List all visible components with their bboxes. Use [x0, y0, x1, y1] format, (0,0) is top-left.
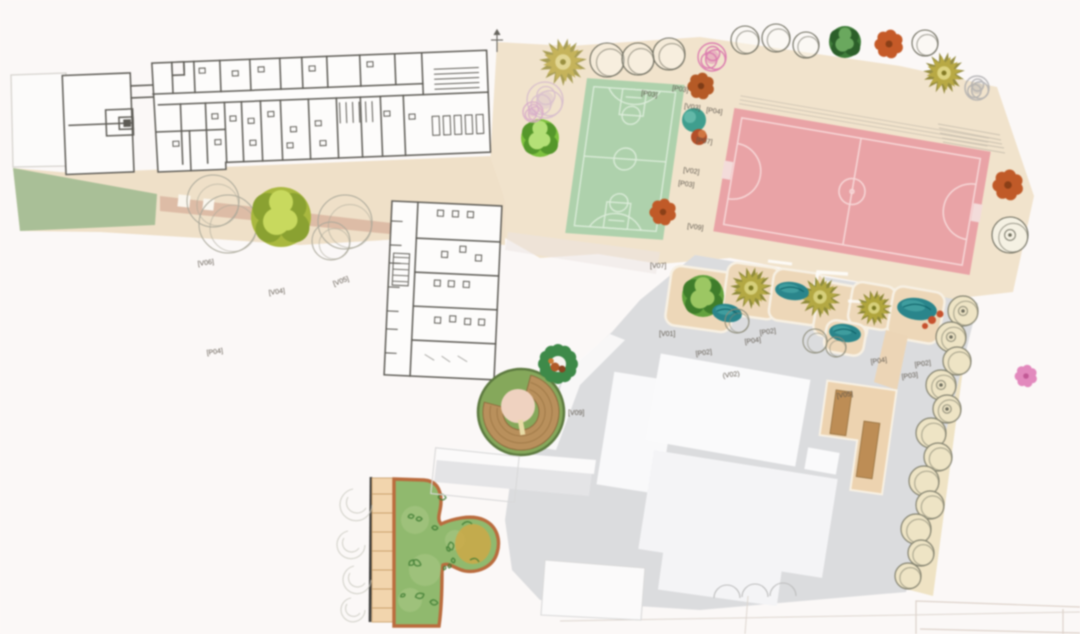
- svg-text:[V01]: [V01]: [659, 331, 675, 338]
- svg-text:[V07]: [V07]: [650, 263, 666, 270]
- svg-text:[V09]: [V09]: [568, 410, 584, 417]
